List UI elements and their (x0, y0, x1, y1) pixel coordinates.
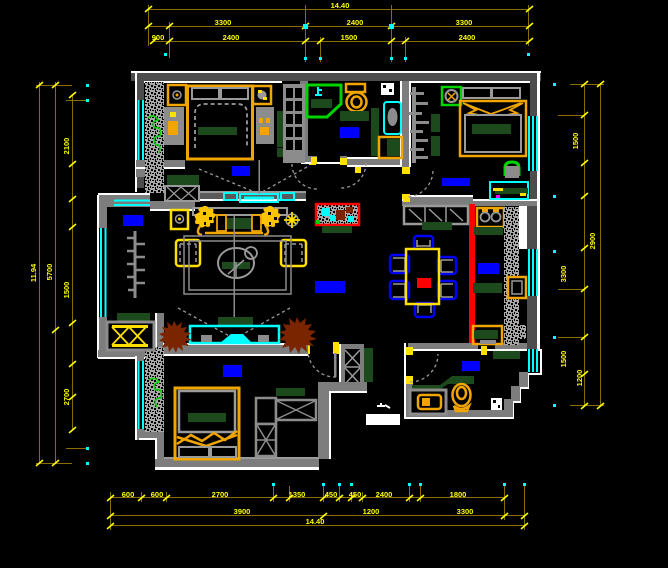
svg-text:3300: 3300 (215, 18, 232, 27)
svg-text:2700: 2700 (62, 389, 71, 406)
svg-text:1500: 1500 (571, 133, 580, 150)
svg-text:1800: 1800 (450, 490, 467, 499)
svg-text:3900: 3900 (234, 507, 251, 516)
svg-text:14.40: 14.40 (331, 1, 350, 10)
svg-text:11.94: 11.94 (29, 263, 38, 282)
svg-text:1200: 1200 (575, 370, 584, 387)
svg-text:2400: 2400 (376, 490, 393, 499)
svg-text:450: 450 (325, 490, 338, 499)
svg-text:1500: 1500 (559, 351, 568, 368)
svg-text:900: 900 (152, 33, 165, 42)
svg-text:3300: 3300 (457, 507, 474, 516)
svg-text:2400: 2400 (459, 33, 476, 42)
svg-text:2400: 2400 (223, 33, 240, 42)
svg-text:3300: 3300 (559, 266, 568, 283)
svg-text:3300: 3300 (456, 18, 473, 27)
svg-text:1500: 1500 (341, 33, 358, 42)
svg-text:600: 600 (151, 490, 164, 499)
svg-text:2400: 2400 (347, 18, 364, 27)
svg-text:1200: 1200 (363, 507, 380, 516)
svg-text:2100: 2100 (62, 138, 71, 155)
svg-text:450: 450 (349, 490, 362, 499)
svg-text:5700: 5700 (45, 264, 54, 281)
svg-text:1500: 1500 (62, 282, 71, 299)
svg-text:2900: 2900 (588, 233, 597, 250)
svg-text:2700: 2700 (212, 490, 229, 499)
svg-text:14.40: 14.40 (306, 517, 325, 526)
svg-text:1350: 1350 (289, 490, 306, 499)
svg-text:600: 600 (122, 490, 135, 499)
